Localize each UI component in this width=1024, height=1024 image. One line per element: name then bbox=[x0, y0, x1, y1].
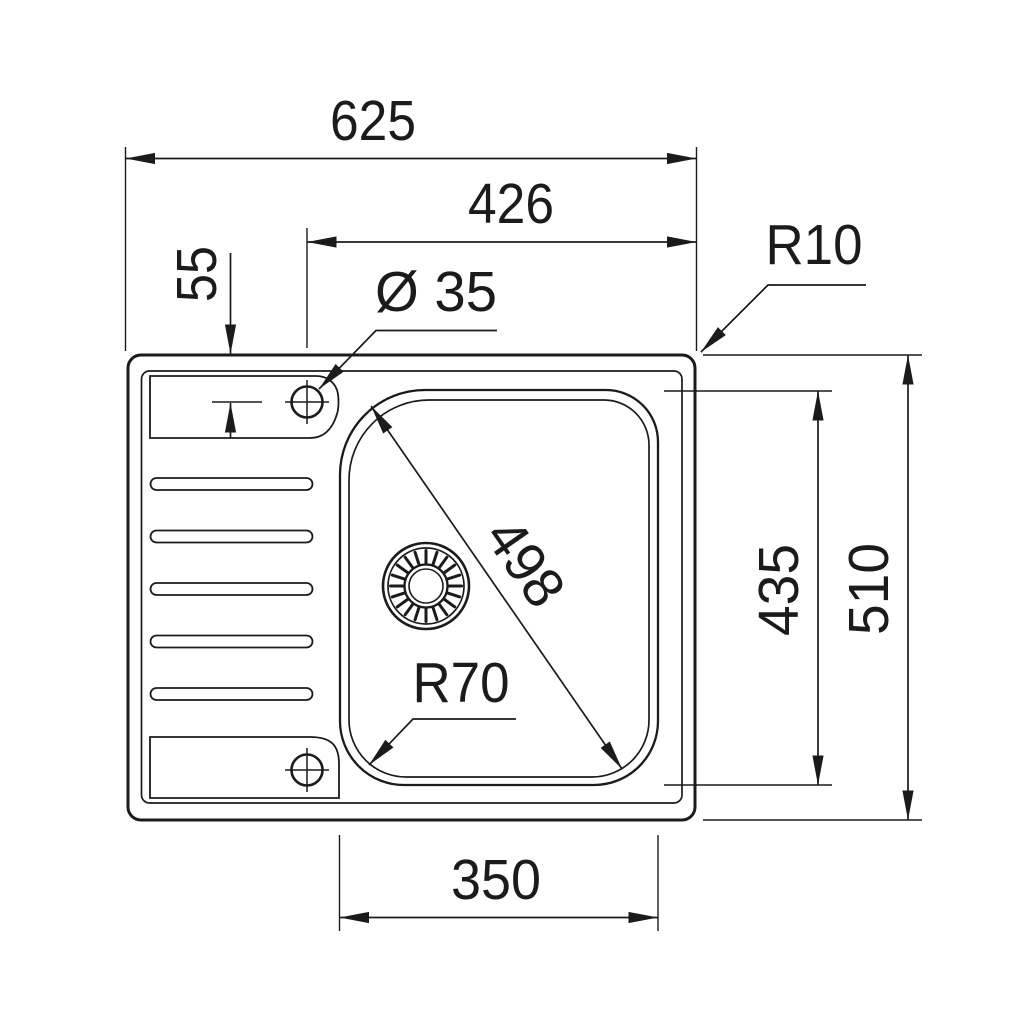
drain-inner-ring-inner-line bbox=[409, 569, 443, 603]
drainboard-rib bbox=[151, 688, 313, 700]
leader-bowl-corner-radius bbox=[369, 719, 516, 765]
dim-bowl-corner-radius-value: R70 bbox=[413, 651, 510, 715]
drain-spoke bbox=[447, 575, 459, 579]
drainboard-bottom-deck bbox=[150, 737, 339, 798]
drain-spoke bbox=[392, 575, 404, 579]
dim-faucet-offset-value: 55 bbox=[165, 246, 229, 302]
mounting-hole bbox=[285, 748, 329, 792]
drain-spoke bbox=[439, 557, 447, 568]
dim-overall-width-value: 625 bbox=[330, 89, 416, 153]
drain-spoke bbox=[444, 599, 455, 607]
drain-spoke bbox=[397, 565, 408, 573]
dimension-labels: 625 426 55 Ø 35 R10 498 R70 435 510 350 bbox=[165, 89, 901, 912]
dim-bowl-height-value: 435 bbox=[747, 544, 811, 636]
drainboard-ribs bbox=[151, 478, 313, 700]
dim-faucet-hole-diameter-value: Ø 35 bbox=[375, 260, 497, 324]
drain-spoke bbox=[415, 552, 419, 564]
drain-spoke bbox=[405, 557, 413, 568]
drain-spoke bbox=[397, 599, 408, 607]
drain-spoke bbox=[405, 604, 413, 615]
drawing-page: 625 426 55 Ø 35 R10 498 R70 435 510 350 bbox=[0, 0, 1024, 1024]
bowl-inner-edge bbox=[349, 400, 649, 777]
drainboard-rib bbox=[151, 636, 313, 648]
drain-spoke bbox=[433, 607, 437, 619]
drainboard-rib bbox=[151, 478, 313, 490]
drain-spokes bbox=[391, 551, 462, 622]
drain-spoke bbox=[433, 552, 437, 564]
drainboard-top-deck bbox=[150, 376, 339, 438]
dim-bowl-diagonal-value: 498 bbox=[472, 507, 577, 619]
leader-rim-corner-radius bbox=[701, 285, 866, 352]
dim-overall-height-value: 510 bbox=[837, 543, 901, 635]
drainboard-rib bbox=[151, 583, 313, 595]
drain-spoke bbox=[392, 593, 404, 597]
dim-rim-corner-radius-value: R10 bbox=[766, 213, 863, 277]
drain-spoke bbox=[415, 607, 419, 619]
drain-spoke bbox=[439, 604, 447, 615]
drainboard-rib bbox=[151, 531, 313, 543]
dim-bowl-bottom-width-value: 350 bbox=[451, 848, 541, 912]
leader-faucet-hole-diameter bbox=[319, 331, 497, 390]
drain-spoke bbox=[444, 565, 455, 573]
drain-spoke bbox=[447, 593, 459, 597]
sink-dimension-drawing: 625 426 55 Ø 35 R10 498 R70 435 510 350 bbox=[0, 0, 1024, 1024]
dim-faucet-to-right-edge-value: 426 bbox=[468, 172, 554, 236]
drain bbox=[383, 543, 469, 629]
drain-inner-ring bbox=[405, 565, 448, 608]
